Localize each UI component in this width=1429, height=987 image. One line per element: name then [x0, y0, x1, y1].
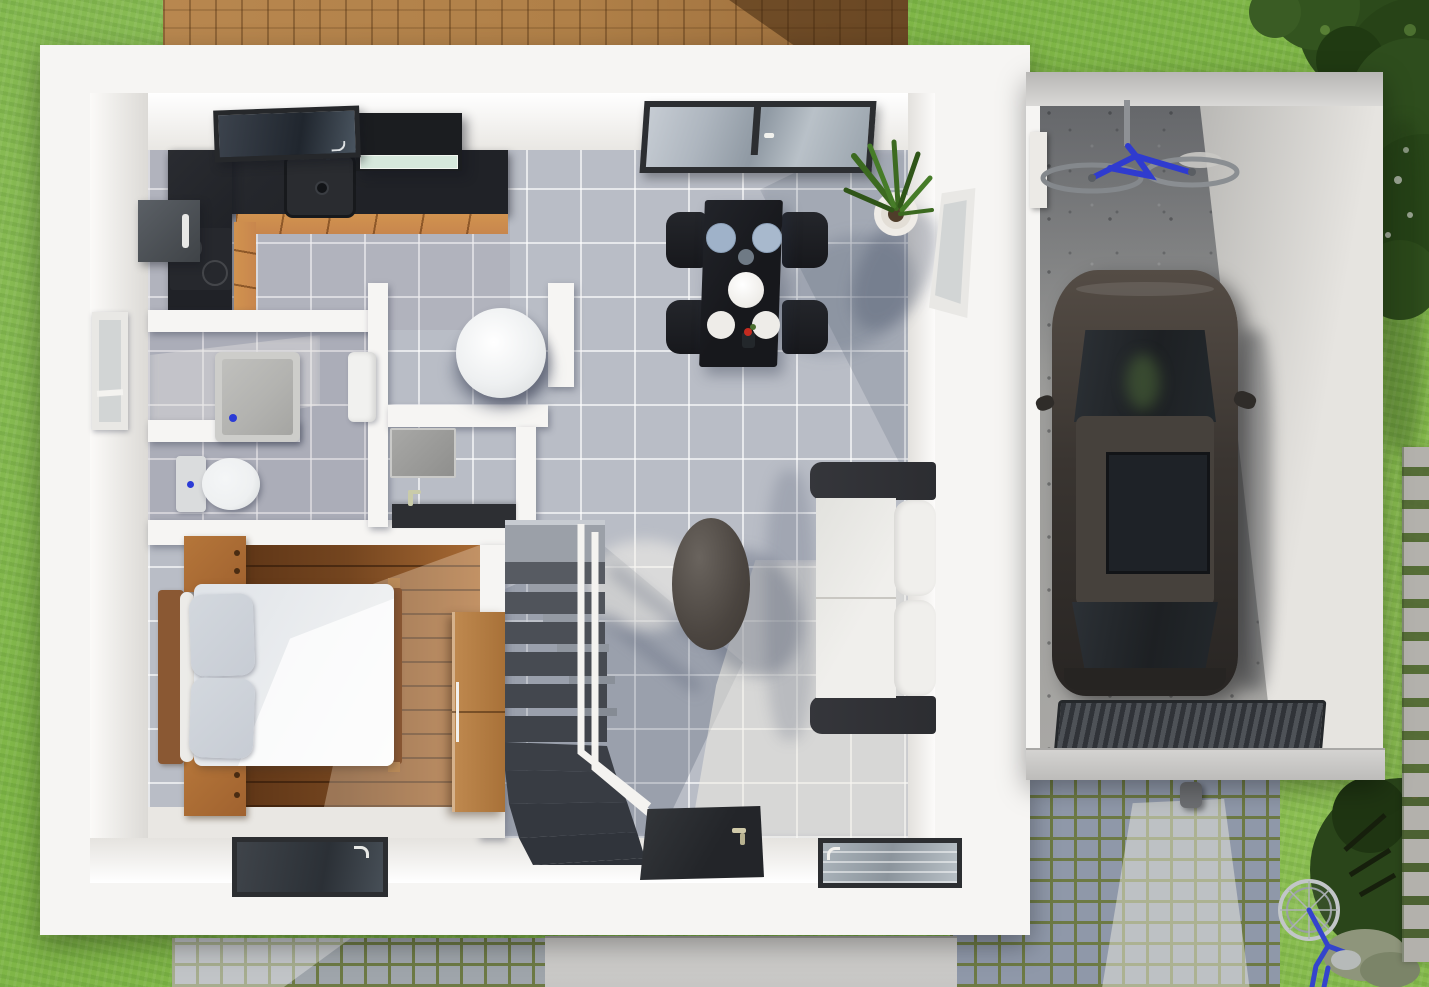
refrigerator — [138, 200, 200, 262]
front-door — [640, 806, 764, 880]
wall-bathroom-north — [148, 310, 378, 332]
wardrobe-door-seam — [452, 711, 505, 713]
bed — [156, 578, 406, 770]
car-trunk-highlight — [1076, 282, 1214, 296]
coffee-table — [672, 518, 750, 650]
hall-window — [818, 838, 962, 888]
driveway — [1026, 778, 1280, 987]
plate-shaded — [752, 223, 782, 253]
sofa-back-cushion — [894, 500, 936, 596]
drain-pipe — [1180, 782, 1202, 808]
bathroom-window — [92, 312, 128, 430]
bedroom-window-handle — [354, 846, 369, 858]
knob — [234, 792, 240, 798]
leaf — [750, 324, 756, 330]
sofa-armrest — [810, 696, 936, 734]
front-door-handle-plate — [740, 833, 745, 845]
knob — [234, 568, 240, 574]
floor-plan-scene — [0, 0, 1429, 987]
sofa — [808, 460, 936, 734]
utility-counter — [392, 504, 516, 528]
utility-faucet-spout — [408, 490, 421, 494]
dining-chair — [666, 212, 706, 268]
curb-cobbles — [172, 938, 545, 987]
utility-faucet — [408, 490, 413, 506]
small-bowl — [738, 249, 754, 265]
flower-vase — [742, 332, 755, 348]
pillow — [189, 677, 256, 759]
kitchen-sink — [284, 154, 356, 218]
wall-wc-east — [548, 283, 574, 387]
plate — [752, 311, 780, 339]
car — [1052, 270, 1238, 696]
wardrobe-handle — [456, 682, 459, 742]
dining-chair — [782, 212, 828, 268]
stepping-stone-path — [1402, 447, 1429, 962]
bedroom-window — [232, 837, 388, 897]
front-walkway — [545, 936, 957, 987]
lawn-bicycle — [1272, 848, 1367, 987]
wc-round-basin — [456, 308, 546, 398]
sofa-seat-seam — [816, 597, 896, 599]
hanging-bicycle — [1040, 100, 1250, 210]
fridge-handle — [182, 214, 189, 248]
wall-utility-east — [516, 427, 536, 527]
shower-tray-inner — [222, 359, 293, 435]
driveway-corner — [950, 930, 1040, 987]
utility-door-leaf — [390, 428, 456, 478]
bathroom-washbasin — [348, 352, 376, 422]
toilet-bowl — [202, 458, 260, 510]
staircase — [503, 520, 663, 865]
knob — [234, 772, 240, 778]
bathroom-window-glass — [99, 320, 121, 422]
roof-window-handle — [331, 141, 345, 151]
sofa-back-cushion — [894, 600, 936, 696]
wardrobe — [452, 612, 505, 812]
tree-reflection — [1126, 354, 1160, 410]
hall-window-handle — [827, 847, 840, 860]
patio-door-handle — [764, 133, 774, 138]
plate-shaded — [706, 223, 736, 253]
patio-door-mullion — [751, 107, 761, 155]
sink-drain — [315, 181, 329, 195]
car-sunroof — [1106, 452, 1210, 574]
serving-bowl — [728, 272, 764, 308]
potted-plant — [836, 138, 936, 243]
living-side-window — [922, 188, 980, 318]
kitchen-roof-window — [213, 105, 361, 162]
plate — [707, 311, 735, 339]
car-bumper — [1064, 668, 1226, 690]
shower-tray — [215, 352, 300, 442]
hood-light-panel — [360, 155, 458, 169]
burner — [202, 260, 228, 286]
pillow — [189, 593, 256, 677]
kitchen-cabinet-front-top — [236, 214, 508, 234]
dining-chair — [782, 300, 828, 354]
garage-threshold — [1026, 748, 1385, 780]
range-hood — [356, 113, 462, 171]
kitchen-cabinet-front-left — [234, 222, 256, 320]
knob — [234, 550, 240, 556]
wall-wc-south — [388, 405, 548, 427]
car-rear-window — [1074, 330, 1216, 422]
shower-drain — [229, 414, 237, 422]
flush-button — [187, 481, 194, 488]
sofa-armrest — [810, 462, 936, 500]
